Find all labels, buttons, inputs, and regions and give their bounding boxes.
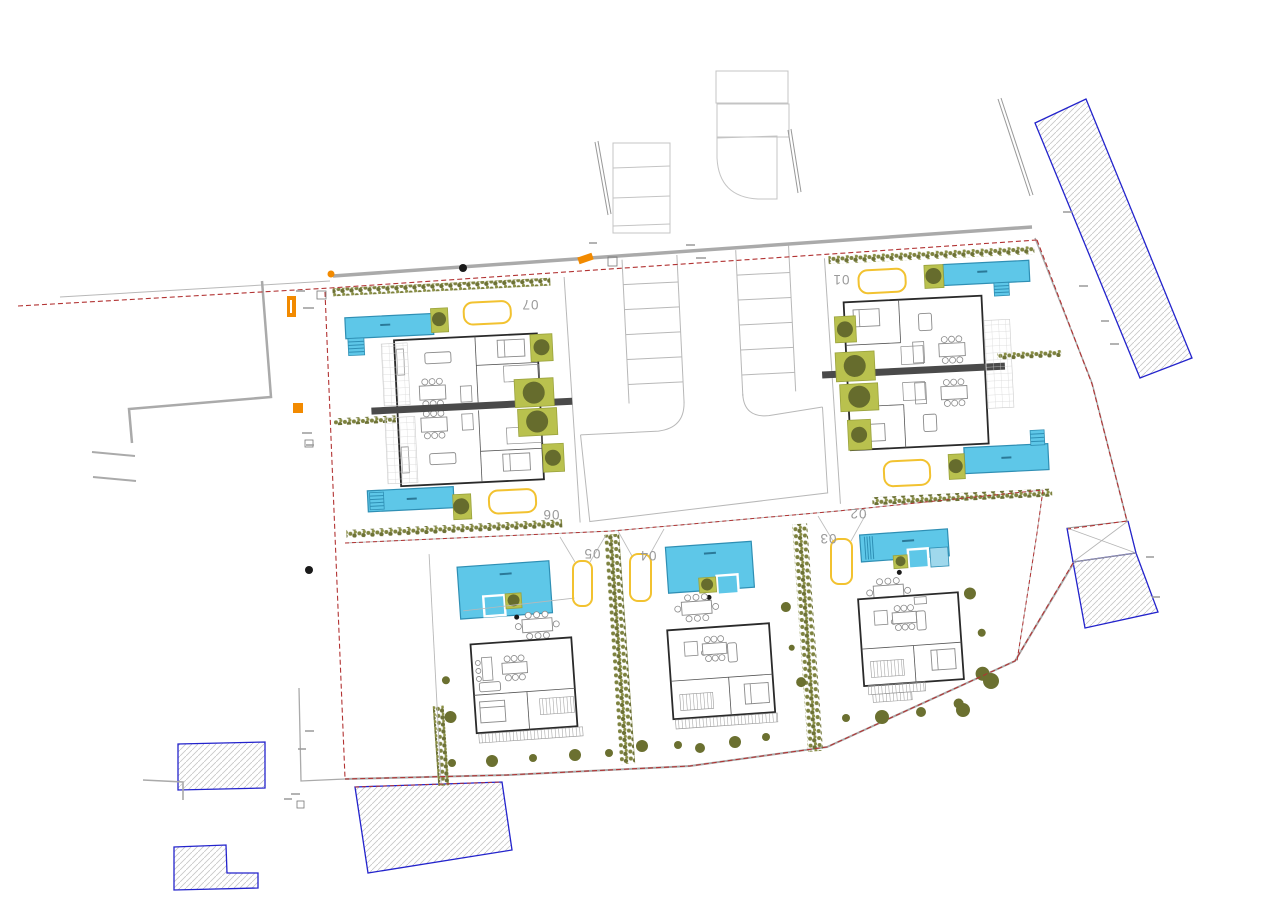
shrub (762, 733, 770, 741)
deck-line (731, 716, 732, 725)
deck-line (913, 683, 914, 692)
chair (943, 379, 949, 385)
parking-edge (789, 246, 796, 392)
deck-line (762, 714, 763, 723)
retaining-wall (93, 477, 136, 481)
chair (553, 621, 559, 627)
text-annotation (305, 730, 314, 732)
pool-step-line (370, 506, 384, 507)
deck-line (724, 717, 725, 726)
text-annotation (303, 307, 314, 309)
pool-step-line (370, 502, 384, 503)
pool-step-line (1030, 434, 1044, 435)
deck-line (685, 719, 686, 728)
jacuzzi (908, 548, 929, 568)
chair (525, 612, 531, 618)
chair (885, 578, 891, 584)
deck-line (773, 713, 774, 722)
deck-line (879, 694, 880, 702)
chair (950, 379, 956, 385)
deck-line (892, 684, 893, 693)
deck-line (541, 730, 542, 739)
site-dot (897, 570, 902, 575)
chair (519, 674, 525, 680)
chair (505, 675, 511, 681)
shrub (842, 714, 850, 722)
deck-line (906, 683, 907, 692)
courtyard-outline (580, 407, 829, 522)
parking-bay-line (623, 282, 678, 285)
deck-line (503, 732, 504, 741)
villa-03 (854, 527, 992, 715)
pool (345, 313, 434, 338)
chair (701, 594, 707, 600)
shrub (695, 743, 705, 753)
shrub (916, 707, 926, 717)
chair (526, 633, 532, 639)
neighbor-outline (613, 166, 670, 168)
neighbor-parcel-hatched (355, 782, 512, 873)
chair (542, 611, 548, 617)
villa-05 (422, 534, 636, 786)
deck-line (692, 719, 693, 728)
chair (957, 357, 963, 363)
shrub (674, 741, 682, 749)
boundary (18, 240, 1037, 306)
lot-number: 02 (849, 506, 866, 521)
chair (958, 379, 964, 385)
neighbor-outline (716, 71, 788, 103)
survey-dot (459, 264, 467, 272)
chair (512, 674, 518, 680)
neighbor-parcel-hatched (1073, 553, 1158, 628)
text-annotation (1079, 285, 1088, 287)
chair (949, 357, 955, 363)
deck-line (769, 713, 770, 722)
shrub (605, 749, 613, 757)
chair (543, 632, 549, 638)
deck-line (538, 730, 539, 739)
outdoor-shower (930, 547, 949, 567)
jacuzzi (483, 595, 505, 616)
shrub (444, 711, 457, 724)
text-annotation (696, 257, 706, 259)
parking-bay-line (627, 357, 682, 360)
deck-line (562, 728, 563, 737)
deck-line (896, 684, 897, 693)
text-annotation (1146, 556, 1154, 558)
lot-number: 03 (819, 531, 836, 546)
chair (956, 336, 962, 342)
text-annotation (298, 748, 306, 750)
chair (959, 400, 965, 406)
site-plan: 07060102050403 (0, 0, 1280, 904)
deck-line (759, 714, 760, 723)
deck-line (904, 692, 905, 700)
shrub (789, 645, 795, 651)
neighbor-parcel-hatched (178, 742, 265, 790)
deck-line (573, 728, 574, 737)
deck-line (696, 719, 697, 728)
text-annotation (589, 242, 597, 244)
deck-line (527, 731, 528, 740)
deck-line (755, 714, 756, 723)
chair (422, 379, 428, 385)
neighbor-outline (717, 104, 789, 137)
terrace-grid (381, 343, 410, 406)
pool-step-line (370, 495, 384, 496)
orange-marker (328, 271, 335, 278)
text-annotation (296, 290, 305, 292)
retaining-wall (92, 452, 135, 456)
deck-line (531, 730, 532, 739)
car-space (858, 268, 906, 293)
deck-line (548, 729, 549, 738)
dining-table (941, 385, 968, 399)
jacuzzi (717, 574, 739, 594)
chair (684, 595, 690, 601)
deck-line (907, 692, 908, 700)
deck-line (893, 693, 894, 701)
parking-edge (736, 250, 743, 396)
chair (894, 605, 900, 611)
shrub (977, 628, 986, 637)
chair (504, 656, 510, 662)
deck-line (489, 733, 490, 742)
chair (705, 655, 711, 661)
deck-line (903, 683, 904, 692)
deck-line (910, 683, 911, 692)
shrub (636, 740, 648, 752)
deck-line (485, 734, 486, 743)
chair (518, 655, 524, 661)
fence-double (1001, 98, 1033, 195)
shrub (983, 673, 999, 689)
site-plan-drawing: 07060102050403 (0, 0, 1280, 904)
retaining-wall (129, 281, 271, 443)
neighbor-parcel-hatched (1035, 99, 1192, 378)
curb-line (60, 281, 330, 297)
dining-table (419, 385, 446, 400)
villa-04 (660, 523, 823, 761)
lot-block-ne (816, 245, 1068, 507)
deck-line (886, 694, 887, 702)
deck-line (496, 733, 497, 742)
deck-line (510, 732, 511, 741)
deck-line (482, 734, 483, 743)
chair (429, 378, 435, 384)
parking-bay-line (737, 272, 790, 275)
chair (711, 636, 717, 642)
deck-line (727, 716, 728, 725)
lot-number: 05 (583, 546, 600, 561)
drive-fillet (743, 390, 823, 417)
chair (717, 635, 723, 641)
sight-line (560, 537, 575, 562)
dining-table (892, 611, 917, 624)
pool-steps-area (369, 492, 384, 510)
deck-line (878, 685, 879, 694)
deck-line (748, 715, 749, 724)
shrub (529, 754, 537, 762)
chair (876, 579, 882, 585)
building-villa (470, 637, 577, 733)
dining-table (522, 618, 553, 633)
pool-steps-area (348, 338, 365, 356)
deck-line (559, 729, 560, 738)
deck-line (520, 731, 521, 740)
deck-line (720, 717, 721, 726)
neighbor-outline (613, 196, 670, 198)
deck-line (741, 715, 742, 724)
parking-bay-line (741, 347, 794, 350)
lot-number: 06 (542, 507, 559, 522)
deck-line (897, 693, 898, 701)
terrace-grid (984, 319, 1014, 408)
parcel-edge (1128, 521, 1136, 553)
deck-line (513, 732, 514, 741)
parking-edge (622, 260, 629, 404)
deck-line (552, 729, 553, 738)
parcel-edge (1067, 528, 1073, 562)
deck-line (924, 682, 925, 691)
car-space (573, 561, 592, 606)
text-annotation (1110, 343, 1119, 345)
chair (893, 577, 899, 583)
orange-marker (293, 403, 303, 413)
lot-number: 04 (639, 548, 656, 563)
dining-table (681, 600, 712, 615)
shrub (729, 736, 741, 748)
text-annotation (306, 444, 314, 446)
neighbor-parcel-hatched (174, 845, 258, 890)
deck-line (710, 718, 711, 727)
deck-line (900, 693, 901, 701)
west-fence (299, 688, 345, 781)
deck-line (569, 728, 570, 737)
text-annotation (1101, 320, 1109, 322)
shrub (486, 755, 498, 767)
shrub (569, 749, 581, 761)
chair (942, 357, 948, 363)
hedge (792, 523, 823, 751)
deck-line (917, 682, 918, 691)
hedge (872, 488, 1052, 505)
chair (439, 432, 445, 438)
chair (948, 336, 954, 342)
deck-line (689, 719, 690, 728)
survey-dot (305, 566, 313, 574)
deck-line (524, 731, 525, 740)
deck-line (883, 694, 884, 702)
plan-root: 07060102050403 (18, 71, 1192, 890)
dining-table (702, 642, 727, 655)
deck-line (876, 694, 877, 702)
terrace-grid (385, 416, 418, 483)
deck-line (871, 686, 872, 695)
deck-line (576, 727, 577, 736)
chair (895, 624, 901, 630)
deck-line (703, 718, 704, 727)
deck-line (899, 684, 900, 693)
deck-line (734, 716, 735, 725)
deck-line (566, 728, 567, 737)
deck-line (752, 715, 753, 724)
chair (944, 400, 950, 406)
orange-marker (577, 253, 593, 265)
parking-bay-line (742, 372, 795, 375)
deck-line (882, 685, 883, 694)
pool-step-line (1031, 441, 1045, 442)
chair (424, 433, 430, 439)
lot-block-nw (327, 277, 580, 538)
deck-line (889, 684, 890, 693)
neighbor-outline (717, 136, 777, 199)
deck-line (713, 717, 714, 726)
chair (719, 654, 725, 660)
deck-line (506, 732, 507, 741)
deck-line (911, 692, 912, 700)
chair (694, 615, 700, 621)
chair (952, 400, 958, 406)
chair (703, 614, 709, 620)
chair (712, 603, 718, 609)
chair (941, 336, 947, 342)
driveway (572, 244, 829, 522)
deck-line (717, 717, 718, 726)
deck-line (920, 682, 921, 691)
deck-line (499, 733, 500, 742)
deck-line (776, 713, 777, 722)
chair (693, 594, 699, 600)
parking-edge (677, 255, 684, 403)
chair (533, 612, 539, 618)
chair (686, 616, 692, 622)
chair (704, 636, 710, 642)
text-annotation (291, 793, 300, 795)
pool-step-line (370, 499, 384, 500)
chair (904, 587, 910, 593)
neighbor-outline (613, 143, 670, 233)
parking-bay-line (624, 307, 679, 310)
parking-bay-line (626, 332, 681, 335)
parking-bay-line (738, 297, 791, 300)
pool-step-line (1030, 437, 1044, 438)
deck-line (706, 718, 707, 727)
car-space (883, 459, 930, 486)
shrub (781, 602, 792, 613)
chair (866, 590, 872, 596)
chair (712, 655, 718, 661)
car-space (488, 489, 536, 514)
dining-table (502, 662, 528, 675)
chair (901, 605, 907, 611)
text-annotation (1152, 596, 1160, 598)
chair (907, 604, 913, 610)
parking-bay-line (739, 322, 792, 325)
deck-line (766, 714, 767, 723)
chair (515, 623, 521, 629)
utility-symbol (297, 801, 304, 808)
shrub (448, 759, 456, 767)
neighbor-outline (613, 224, 670, 226)
shrub (956, 703, 970, 717)
chair (902, 624, 908, 630)
lot-number: 01 (832, 272, 849, 287)
deck-line (555, 729, 556, 738)
fence-double (598, 141, 611, 214)
deck-line (885, 685, 886, 694)
deck-line (517, 731, 518, 740)
deck-line (890, 693, 891, 701)
deck-line (492, 733, 493, 742)
drive-fillet (579, 401, 685, 435)
shrub (442, 676, 451, 685)
shrub (875, 710, 889, 724)
deck-line (699, 718, 700, 727)
deck-line (745, 715, 746, 724)
chair (675, 606, 681, 612)
deck-line (534, 730, 535, 739)
fence-double (595, 142, 608, 215)
text-annotation (1063, 211, 1072, 213)
text-annotation (302, 432, 312, 434)
text-annotation (284, 798, 292, 800)
shrub (964, 587, 977, 600)
deck-line (738, 716, 739, 725)
chair (436, 378, 442, 384)
chair (511, 655, 517, 661)
chair (535, 633, 541, 639)
parking-bay-line (628, 382, 683, 385)
fence-double (998, 99, 1030, 196)
dining-table (421, 417, 448, 432)
chair (909, 623, 915, 629)
deck-line (875, 685, 876, 694)
car-space (463, 301, 511, 325)
dining-table (939, 343, 966, 357)
text-annotation (686, 244, 695, 246)
pool (943, 260, 1030, 285)
chair (432, 432, 438, 438)
lot-number: 07 (521, 297, 538, 312)
deck-line (678, 720, 679, 729)
neighbor-wall (143, 780, 183, 800)
deck-line (682, 720, 683, 729)
deck-line (580, 727, 581, 736)
deck-line (545, 729, 546, 738)
boundary (325, 292, 345, 778)
